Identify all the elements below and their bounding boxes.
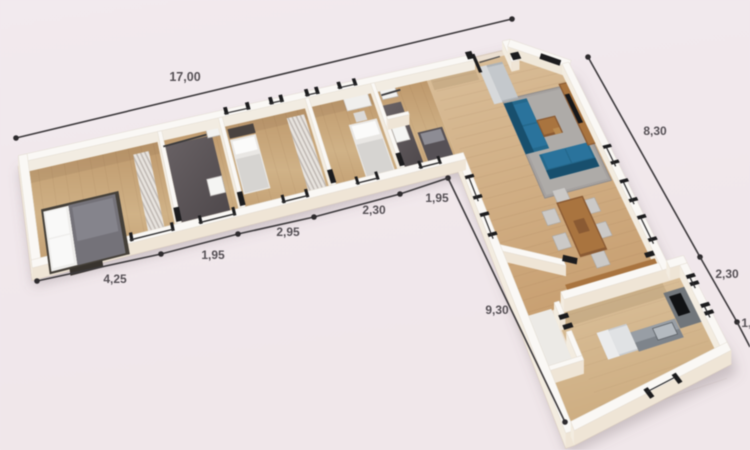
svg-text:9,30: 9,30 [485, 303, 509, 317]
svg-text:8,30: 8,30 [643, 124, 667, 138]
svg-text:1,95: 1,95 [425, 191, 449, 205]
svg-text:1,95: 1,95 [201, 248, 225, 262]
svg-text:17,00: 17,00 [169, 70, 200, 84]
svg-text:2,95: 2,95 [276, 225, 300, 239]
svg-text:2,30: 2,30 [362, 203, 386, 217]
svg-text:2,30: 2,30 [715, 267, 739, 281]
svg-text:4,25: 4,25 [103, 272, 127, 286]
svg-text:1,95: 1,95 [741, 316, 750, 330]
